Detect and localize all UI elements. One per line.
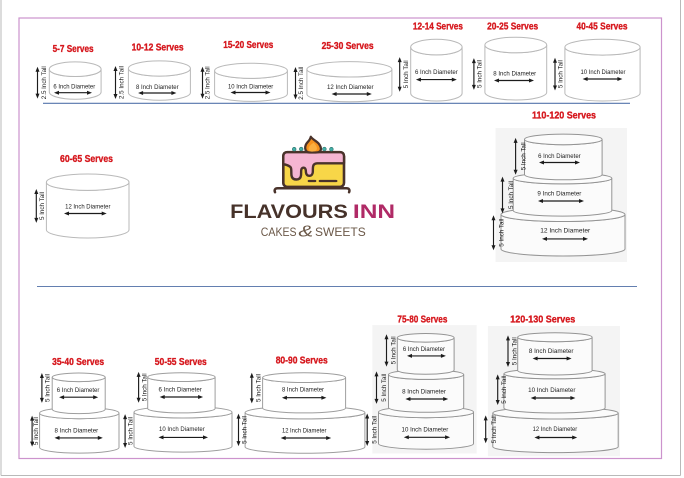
svg-text:5 Inch Tall: 5 Inch Tall: [242, 415, 249, 443]
svg-text:20-25 Serves: 20-25 Serves: [487, 22, 538, 33]
svg-text:8 Inch Diameter: 8 Inch Diameter: [55, 428, 99, 435]
svg-text:8 Inch Diameter: 8 Inch Diameter: [136, 84, 179, 91]
svg-text:5 Inch Tall: 5 Inch Tall: [403, 60, 410, 88]
svg-text:10-12 Serves: 10-12 Serves: [132, 43, 184, 54]
svg-text:80-90 Serves: 80-90 Serves: [276, 356, 328, 367]
svg-text:8 Inch Diameter: 8 Inch Diameter: [529, 348, 574, 355]
svg-text:9 Inch Diameter: 9 Inch Diameter: [537, 191, 582, 198]
svg-text:15-20 Serves: 15-20 Serves: [223, 40, 273, 51]
svg-text:110-120 Serves: 110-120 Serves: [532, 111, 596, 122]
svg-text:CAKES: CAKES: [261, 227, 297, 239]
svg-text:8 Inch Diameter: 8 Inch Diameter: [282, 387, 325, 394]
svg-text:5 Inch Tall: 5 Inch Tall: [520, 142, 527, 170]
svg-text:5 Inch Tall: 5 Inch Tall: [141, 373, 148, 401]
svg-text:5 Inch Tall: 5 Inch Tall: [512, 337, 519, 365]
svg-text:5 Inch Tall: 5 Inch Tall: [391, 336, 398, 364]
svg-text:SWEETS: SWEETS: [315, 227, 366, 239]
svg-text:5 Inch Tall: 5 Inch Tall: [477, 60, 484, 88]
svg-text:8 Inch Diameter: 8 Inch Diameter: [402, 388, 447, 395]
svg-text:12-14 Serves: 12-14 Serves: [413, 21, 463, 32]
svg-text:5-7 Serves: 5-7 Serves: [53, 44, 94, 55]
svg-text:5 Inch Tall: 5 Inch Tall: [558, 60, 565, 88]
svg-text:5 Inch Tall: 5 Inch Tall: [508, 181, 515, 209]
svg-text:5 Inch Tall: 5 Inch Tall: [33, 417, 40, 445]
svg-text:12 Inch Diameter: 12 Inch Diameter: [282, 427, 327, 434]
svg-text:12 Inch Diameter: 12 Inch Diameter: [65, 204, 111, 211]
svg-text:&: &: [298, 224, 313, 241]
svg-text:5 Inch Tall: 5 Inch Tall: [501, 375, 508, 403]
svg-text:50-55 Serves: 50-55 Serves: [155, 357, 207, 368]
svg-text:120-130 Serves: 120-130 Serves: [510, 315, 575, 326]
svg-text:INN: INN: [353, 201, 395, 223]
svg-text:5 Inch Tall: 5 Inch Tall: [381, 373, 388, 401]
svg-text:5 Inch Tall: 5 Inch Tall: [498, 218, 505, 246]
svg-text:5 Inch Tall: 5 Inch Tall: [39, 192, 46, 220]
svg-text:40-45 Serves: 40-45 Serves: [577, 22, 628, 33]
svg-text:5 Inch Tall: 5 Inch Tall: [491, 415, 498, 443]
svg-text:FLAVOURS: FLAVOURS: [230, 201, 348, 223]
svg-text:75-80 Serves: 75-80 Serves: [397, 314, 447, 325]
svg-text:12 Inch Diameter: 12 Inch Diameter: [533, 426, 578, 433]
svg-text:10 Inch Diameter: 10 Inch Diameter: [402, 426, 449, 433]
svg-text:6 Inch Diameter: 6 Inch Diameter: [57, 387, 100, 394]
svg-text:6 Inch Diameter: 6 Inch Diameter: [159, 387, 203, 394]
svg-text:25-30 Serves: 25-30 Serves: [322, 41, 374, 52]
svg-text:12 Inch Diameter: 12 Inch Diameter: [327, 84, 374, 91]
svg-text:12 Inch Diameter: 12 Inch Diameter: [540, 227, 591, 234]
svg-text:8 Inch Diameter: 8 Inch Diameter: [493, 71, 537, 78]
svg-text:2.5 Inch Tall: 2.5 Inch Tall: [204, 66, 211, 99]
svg-text:2.5 Inch Tall: 2.5 Inch Tall: [298, 66, 305, 99]
svg-text:2.5 Inch Tall: 2.5 Inch Tall: [119, 66, 126, 99]
svg-text:5 Inch Tall: 5 Inch Tall: [128, 417, 135, 445]
svg-text:10 Inch Diameter: 10 Inch Diameter: [581, 69, 627, 76]
svg-text:5 Inch Tall: 5 Inch Tall: [255, 374, 262, 402]
svg-text:35-40 Serves: 35-40 Serves: [52, 357, 104, 368]
svg-text:10 Inch Diameter: 10 Inch Diameter: [159, 426, 205, 433]
svg-text:5 Inch Tall: 5 Inch Tall: [45, 374, 52, 402]
svg-text:10 Inch Diameter: 10 Inch Diameter: [528, 387, 576, 394]
svg-text:6 Inch Diameter: 6 Inch Diameter: [403, 346, 446, 353]
svg-text:5 Inch Tall: 5 Inch Tall: [372, 415, 379, 443]
svg-text:2.5 Inch Tall: 2.5 Inch Tall: [41, 66, 48, 99]
svg-text:10 Inch Diameter: 10 Inch Diameter: [228, 83, 274, 90]
svg-text:6 Inch Diameter: 6 Inch Diameter: [53, 83, 96, 90]
svg-text:6 Inch Diameter: 6 Inch Diameter: [415, 69, 459, 76]
svg-text:60-65 Serves: 60-65 Serves: [60, 154, 113, 165]
svg-text:6 Inch Diameter: 6 Inch Diameter: [538, 153, 581, 160]
